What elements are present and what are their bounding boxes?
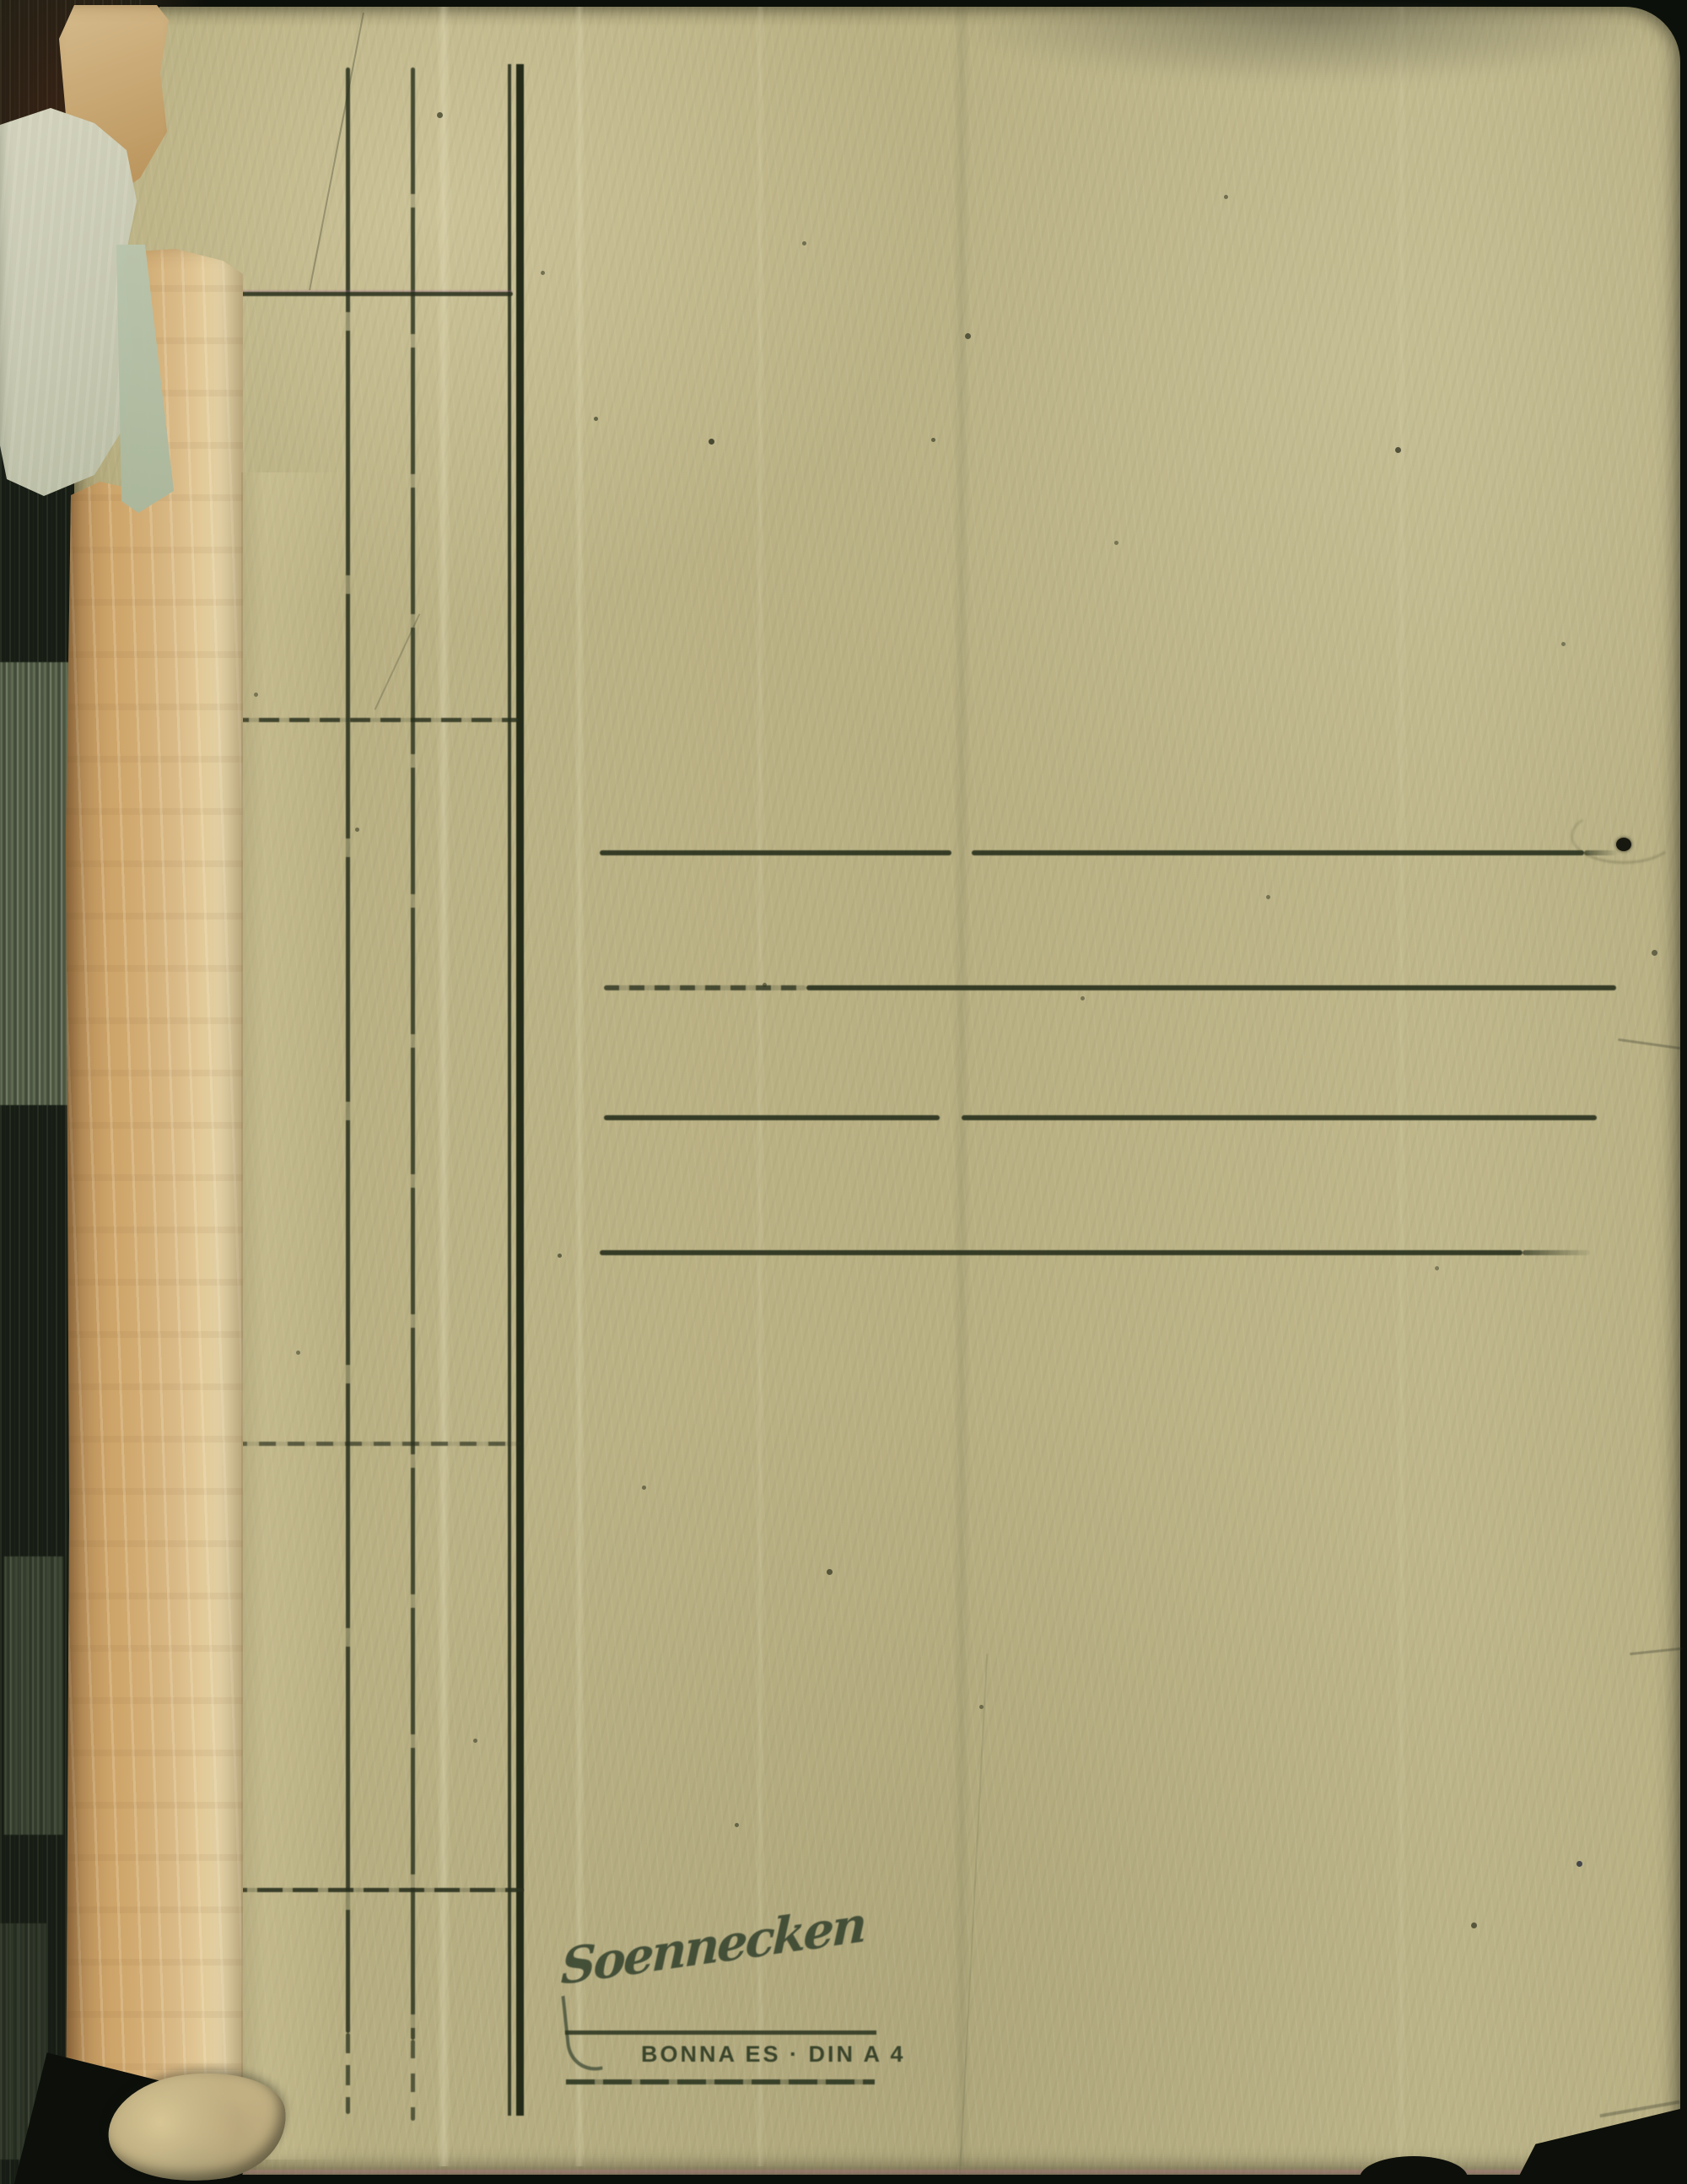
column-rule-double — [508, 64, 526, 2116]
spine-tape — [66, 249, 243, 2175]
scanned-folder-cover: Soennecken BONNA ES · DIN A 4 — [0, 0, 1687, 2184]
title-rule-segment — [1584, 850, 1616, 855]
title-rule-segment — [600, 1250, 1523, 1255]
page-stack-highlight — [4, 1556, 63, 1835]
title-rule-segment — [962, 1115, 1597, 1120]
brand-product-line: BONNA ES · DIN A 4 — [641, 2041, 906, 2068]
column-rule-middle — [411, 67, 415, 2040]
scan-color-fringe — [101, 2170, 1535, 2174]
column-rule-middle-end — [411, 2040, 415, 2121]
edge-tear-crease — [1571, 808, 1677, 864]
title-rule-segment — [604, 985, 806, 990]
edge-tear-hole — [1616, 838, 1631, 851]
title-rule-segment — [806, 985, 1616, 990]
dirt-smudge — [945, 10, 1679, 86]
title-rule-segment — [1523, 1250, 1590, 1255]
logo-rule-bottom — [566, 2079, 875, 2084]
paper-specks — [0, 0, 3, 3]
spine-tape-shadow — [241, 472, 265, 2170]
column-rule-left — [346, 67, 350, 2033]
title-rule-segment — [972, 850, 1584, 855]
column-rule-left-end — [346, 2033, 350, 2114]
title-rule-segment — [604, 1115, 940, 1120]
title-rule-segment — [600, 850, 951, 855]
brand-logo: Soennecken BONNA ES · DIN A 4 — [540, 1937, 911, 2106]
logo-rule-top — [565, 2030, 876, 2035]
